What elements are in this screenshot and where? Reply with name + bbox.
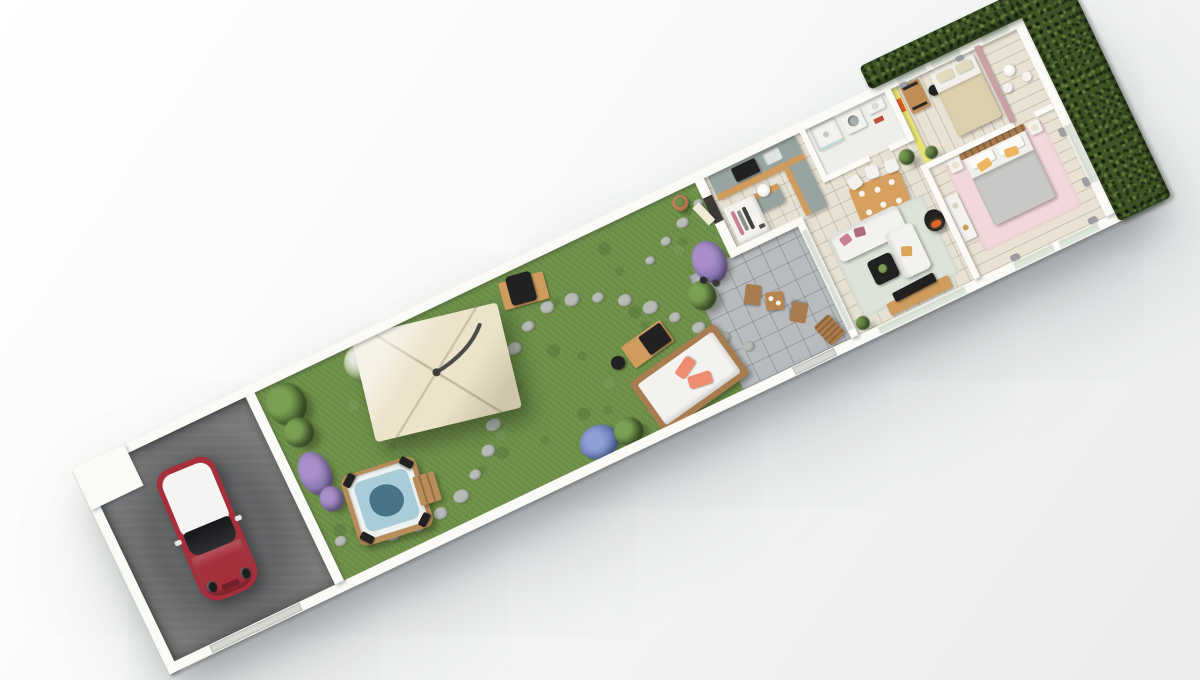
decor-icon xyxy=(951,202,959,210)
place-setting-icon xyxy=(874,186,882,194)
floor-plan-strip xyxy=(71,0,1162,675)
decor-icon xyxy=(962,223,970,231)
kettle-grill-icon xyxy=(608,353,628,373)
basin-bowl-icon xyxy=(870,101,879,110)
bistro-table xyxy=(765,291,785,311)
mustard-pillow-icon xyxy=(901,246,912,256)
table-lamp-icon xyxy=(1030,123,1039,132)
stove-fire-icon xyxy=(930,219,942,229)
plate-icon xyxy=(776,300,781,305)
table-lamp-icon xyxy=(951,161,960,170)
shower-drain-icon xyxy=(822,130,830,138)
washer-door-icon xyxy=(846,114,861,129)
place-setting-icon xyxy=(879,201,887,209)
bistro-chair xyxy=(744,284,762,306)
decor-plant-icon xyxy=(877,263,889,275)
place-setting-icon xyxy=(858,190,866,198)
shoes-icon xyxy=(759,223,766,229)
bistro-chair xyxy=(789,301,808,323)
pillow-icon xyxy=(935,67,955,83)
render-canvas: { "scene": { "kind": "3d-isometric-floor… xyxy=(0,0,1200,680)
plate-icon xyxy=(768,296,773,301)
place-setting-icon xyxy=(888,178,896,186)
